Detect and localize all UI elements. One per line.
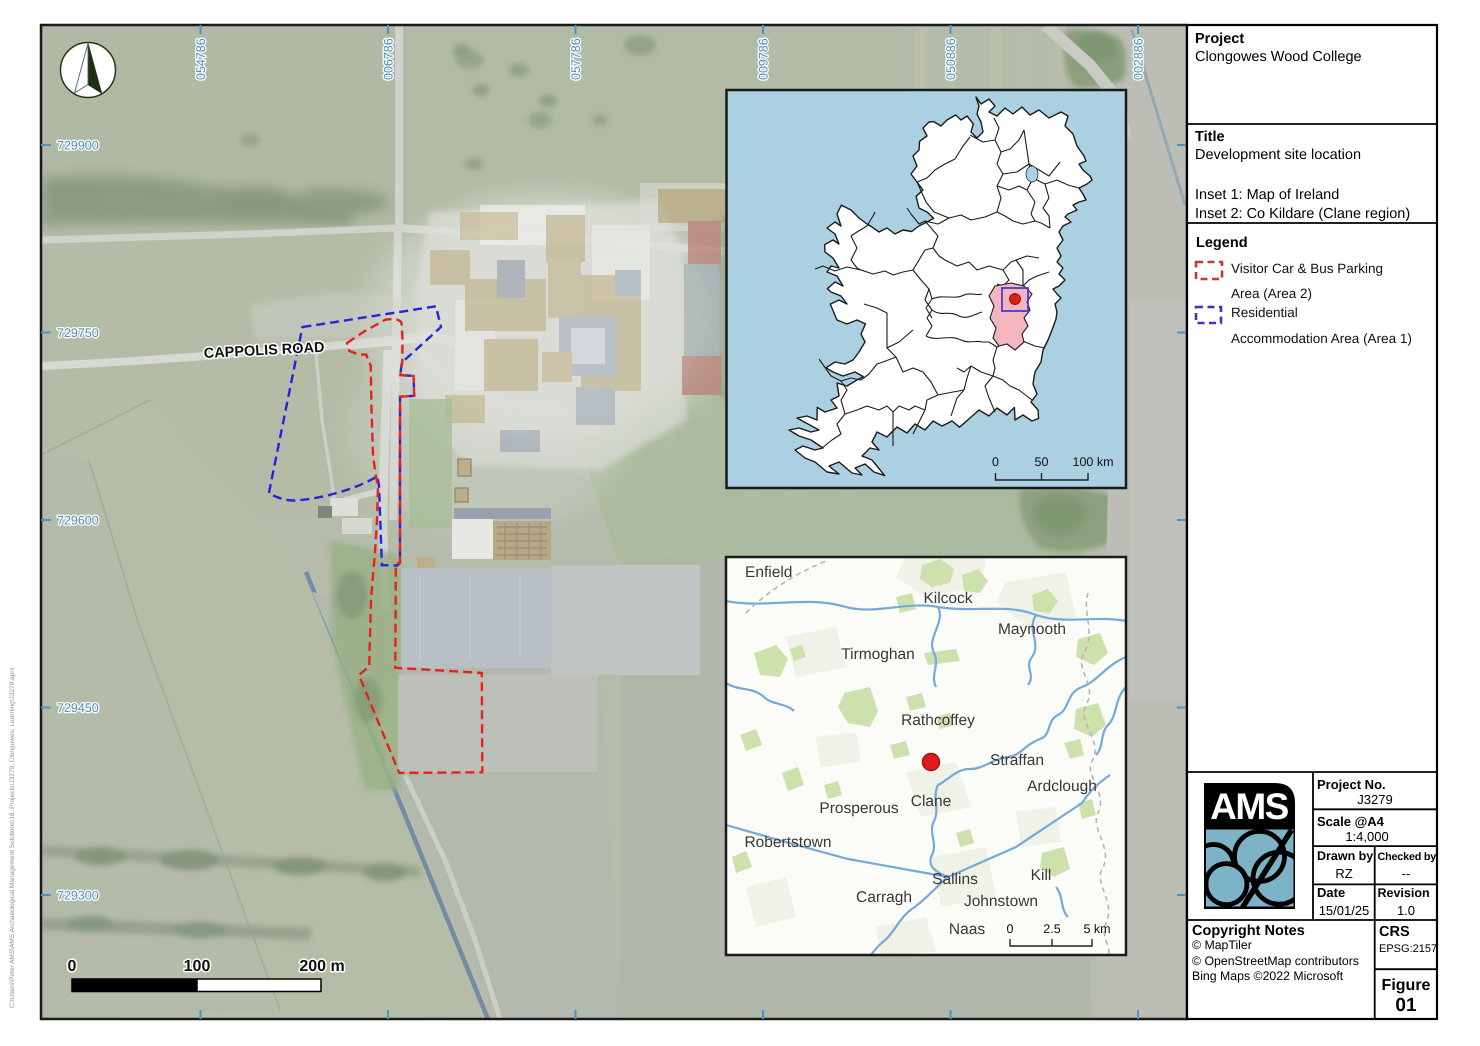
svg-text:01: 01 — [1395, 995, 1417, 1016]
svg-text:Naas: Naas — [949, 921, 985, 938]
svg-text:RZ: RZ — [1335, 866, 1352, 881]
svg-text:Robertstown: Robertstown — [744, 834, 831, 851]
svg-text:0: 0 — [1007, 922, 1014, 936]
svg-text:Johnstown: Johnstown — [964, 893, 1038, 910]
svg-text:Project: Project — [1195, 31, 1244, 47]
svg-text:0: 0 — [68, 958, 77, 975]
svg-text:057786: 057786 — [569, 38, 583, 80]
svg-text:Inset 1: Map of Ireland: Inset 1: Map of Ireland — [1195, 187, 1339, 203]
svg-text:Date: Date — [1317, 885, 1345, 900]
svg-text:Legend: Legend — [1196, 235, 1248, 251]
svg-text:Area (Area 2): Area (Area 2) — [1231, 286, 1312, 301]
svg-text:729750: 729750 — [57, 326, 99, 340]
svg-text:1.0: 1.0 — [1397, 903, 1415, 918]
svg-text:054786: 054786 — [194, 38, 208, 80]
svg-text:006786: 006786 — [382, 38, 396, 80]
svg-text:Title: Title — [1195, 129, 1225, 145]
svg-text:Figure: Figure — [1382, 977, 1431, 994]
svg-text:729600: 729600 — [57, 514, 99, 528]
svg-text:AMS: AMS — [1210, 786, 1289, 827]
svg-text:729450: 729450 — [57, 701, 99, 715]
svg-text:Revision: Revision — [1378, 886, 1430, 900]
svg-text:Scale @A4: Scale @A4 — [1317, 814, 1385, 829]
svg-text:Maynooth: Maynooth — [998, 621, 1066, 638]
svg-text:Checked by: Checked by — [1378, 851, 1437, 863]
svg-text:Residential: Residential — [1231, 305, 1298, 320]
svg-text:15/01/25: 15/01/25 — [1319, 903, 1370, 918]
svg-text:Enfield: Enfield — [745, 564, 792, 581]
svg-text:J3279: J3279 — [1357, 792, 1392, 807]
svg-text:Prosperous: Prosperous — [819, 800, 899, 817]
svg-text:50: 50 — [1035, 455, 1049, 469]
svg-text:© MapTiler: © MapTiler — [1192, 938, 1252, 952]
svg-text:2.5: 2.5 — [1043, 922, 1060, 936]
svg-text:Project No.: Project No. — [1317, 777, 1386, 792]
svg-text:Sallins: Sallins — [932, 871, 978, 888]
svg-text:Kill: Kill — [1031, 867, 1052, 884]
svg-text:002886: 002886 — [1132, 38, 1146, 80]
svg-text:Kilcock: Kilcock — [923, 590, 972, 607]
svg-text:© OpenStreetMap contributors: © OpenStreetMap contributors — [1192, 954, 1359, 968]
svg-text:C:\Users\Peter AMS\AMS Archaeo: C:\Users\Peter AMS\AMS Archaeological Ma… — [9, 667, 16, 1008]
svg-text:0: 0 — [992, 455, 999, 469]
svg-text:Carragh: Carragh — [856, 889, 912, 906]
svg-text:Straffan: Straffan — [990, 752, 1044, 769]
svg-text:Development site location: Development site location — [1195, 147, 1361, 163]
svg-text:--: -- — [1402, 866, 1411, 881]
svg-text:5 km: 5 km — [1083, 922, 1110, 936]
svg-text:Visitor Car & Bus Parking: Visitor Car & Bus Parking — [1231, 261, 1383, 276]
svg-text:Accommodation Area (Area 1): Accommodation Area (Area 1) — [1231, 331, 1412, 346]
svg-text:Inset 2: Co Kildare (Clane reg: Inset 2: Co Kildare (Clane region) — [1195, 206, 1410, 222]
svg-text:100: 100 — [184, 958, 211, 975]
svg-text:Clongowes Wood College: Clongowes Wood College — [1195, 49, 1362, 65]
svg-text:729900: 729900 — [57, 139, 99, 153]
svg-text:Rathcoffey: Rathcoffey — [901, 712, 975, 729]
svg-text:009786: 009786 — [757, 38, 771, 80]
svg-text:Copyright Notes: Copyright Notes — [1192, 923, 1305, 939]
svg-text:Clane: Clane — [911, 793, 952, 810]
svg-text:Drawn by: Drawn by — [1317, 849, 1373, 863]
svg-text:CRS: CRS — [1379, 924, 1410, 940]
svg-text:050886: 050886 — [944, 38, 958, 80]
svg-text:729300: 729300 — [57, 889, 99, 903]
svg-text:EPSG:2157: EPSG:2157 — [1379, 943, 1437, 955]
svg-text:Bing Maps ©2022 Microsoft: Bing Maps ©2022 Microsoft — [1192, 969, 1344, 983]
svg-text:1:4,000: 1:4,000 — [1345, 829, 1388, 844]
svg-text:Tirmoghan: Tirmoghan — [841, 646, 915, 663]
svg-text:100 km: 100 km — [1073, 455, 1114, 469]
svg-text:Ardclough: Ardclough — [1027, 778, 1097, 795]
svg-text:200 m: 200 m — [299, 958, 344, 975]
